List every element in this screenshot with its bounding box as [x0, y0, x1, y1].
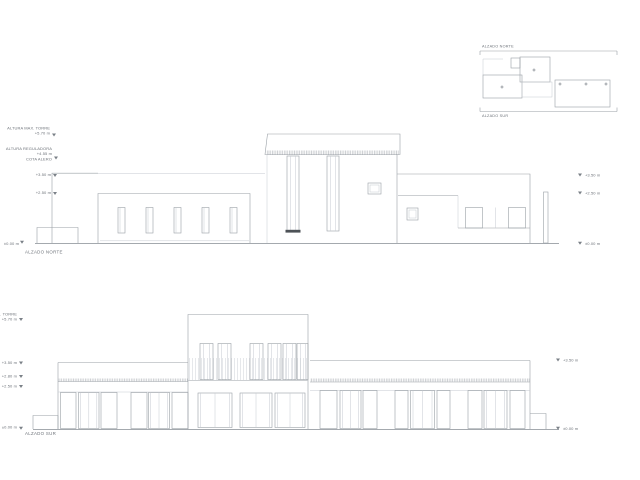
roof-hatch-east — [555, 80, 610, 107]
louver-shutter — [61, 393, 77, 429]
window — [118, 208, 125, 234]
level-value: ±0.00 m — [563, 426, 579, 431]
balustrade-hatch — [189, 358, 308, 380]
door-frame-lines — [201, 393, 230, 428]
canopy-edge-hatch — [266, 151, 399, 156]
fascia-shadow-hatch — [310, 379, 530, 382]
level-value: +5.70 m — [35, 131, 51, 136]
louver-shutter — [101, 393, 117, 429]
level-marker-icon — [578, 174, 582, 177]
level-value: +3.50 m — [563, 358, 579, 363]
roof-hatch-small — [511, 58, 520, 68]
level-value: +2.50 m — [2, 384, 18, 389]
window — [202, 208, 209, 234]
louver-shutter — [363, 391, 377, 429]
south-right-level-markers: +3.50 m ±0.00 m — [556, 358, 579, 431]
window — [174, 208, 181, 234]
level-value: +4.55 m — [37, 151, 53, 156]
low-step-wall — [530, 414, 546, 430]
key-plan: ALZADO NORTE ALZADO SUR — [480, 45, 617, 119]
level-marker-icon — [19, 385, 23, 388]
level-marker-icon — [54, 157, 58, 160]
louver-shutter — [131, 393, 147, 429]
key-plan-wall-line — [483, 59, 503, 75]
level-note: COTA ALERO — [26, 157, 52, 162]
louver-shutter — [510, 391, 525, 429]
door-frame-lines — [81, 393, 97, 429]
louver-shutter — [468, 391, 482, 429]
south-left-level-markers: ALTURA MAX. TORRE +5.70 m +3.50 m +2.80 … — [0, 312, 23, 430]
level-marker-icon — [53, 192, 57, 195]
right-wing-rear-parapet — [397, 174, 530, 243]
level-marker-icon — [556, 359, 560, 362]
level-value: +2.50 m — [36, 190, 52, 195]
level-value: ±0.00 m — [585, 241, 601, 246]
level-marker-icon — [53, 174, 57, 177]
level-value: +2.80 m — [2, 374, 18, 379]
door-frame-lines — [413, 391, 432, 429]
level-marker-icon — [578, 242, 582, 245]
level-value: +5.70 m — [2, 317, 18, 322]
louver-shutter — [466, 208, 483, 229]
low-step-wall — [33, 416, 58, 430]
key-plan-north-bracket — [480, 51, 617, 55]
level-value: +3.50 m — [36, 172, 52, 177]
level-value: ±0.00 m — [2, 425, 18, 430]
left-boundary-wall — [52, 173, 98, 243]
level-value: +3.50 m — [2, 360, 18, 365]
level-marker-icon — [19, 375, 23, 378]
door-frame-lines — [278, 393, 303, 428]
window-frame-lines — [331, 156, 336, 231]
key-plan-label-south: ALZADO SUR — [482, 114, 508, 118]
louver-shutter — [509, 208, 526, 229]
level-marker-icon — [20, 241, 24, 244]
fascia-shadow-hatch — [58, 379, 188, 382]
louver-shutter — [437, 391, 450, 429]
door-frame-lines — [487, 391, 505, 429]
north-elevation-drawing: ALZADO NORTE ALTURA MAX. TORRE +5.70 m A… — [4, 126, 601, 255]
low-garden-wall — [37, 228, 78, 244]
south-elevation-drawing: ALZADO SUR ALTURA MAX. TORRE +5.70 m +3.… — [0, 312, 579, 437]
level-value: ±0.00 m — [4, 241, 20, 246]
window-frame-lines — [291, 156, 296, 231]
louver-shutter — [172, 393, 188, 429]
level-marker-icon — [578, 192, 582, 195]
drawing-sheet: ALZADO NORTE ALZADO SUR — [0, 0, 640, 480]
key-plan-south-bracket — [480, 108, 617, 112]
roof-hatch-tower — [520, 57, 550, 82]
key-plan-label-north: ALZADO NORTE — [482, 45, 514, 49]
right-pillar — [544, 192, 549, 243]
window-frame-lines — [120, 208, 232, 233]
tower-tall-window — [287, 156, 299, 231]
window-sill — [286, 230, 301, 233]
elevation-drawing-canvas: ALZADO NORTE ALZADO SUR — [0, 0, 640, 480]
window-inner-frame — [370, 185, 379, 192]
roof-drain-marks — [501, 69, 608, 89]
door-frame-lines — [343, 391, 359, 429]
south-elevation-title: ALZADO SUR — [25, 431, 56, 436]
door-frame-lines — [243, 393, 270, 428]
level-marker-icon — [19, 362, 23, 365]
north-elevation-title: ALZADO NORTE — [25, 250, 63, 255]
louver-shutter — [395, 391, 408, 429]
door-frame-lines — [151, 393, 168, 429]
window — [146, 208, 153, 234]
level-marker-icon — [52, 134, 56, 137]
level-marker-icon — [19, 318, 23, 321]
north-right-level-markers: +3.50 m +2.50 m ±0.00 m — [578, 173, 601, 247]
louver-shutter — [320, 391, 337, 429]
level-marker-icon — [19, 427, 23, 430]
level-value: +2.50 m — [585, 191, 601, 196]
level-value: +3.50 m — [585, 173, 601, 178]
window-inner-frame — [409, 210, 416, 218]
tower-tall-window — [327, 156, 339, 231]
window — [230, 208, 237, 234]
roof-low-flat — [522, 82, 552, 97]
roof-hatch-west — [483, 75, 522, 98]
